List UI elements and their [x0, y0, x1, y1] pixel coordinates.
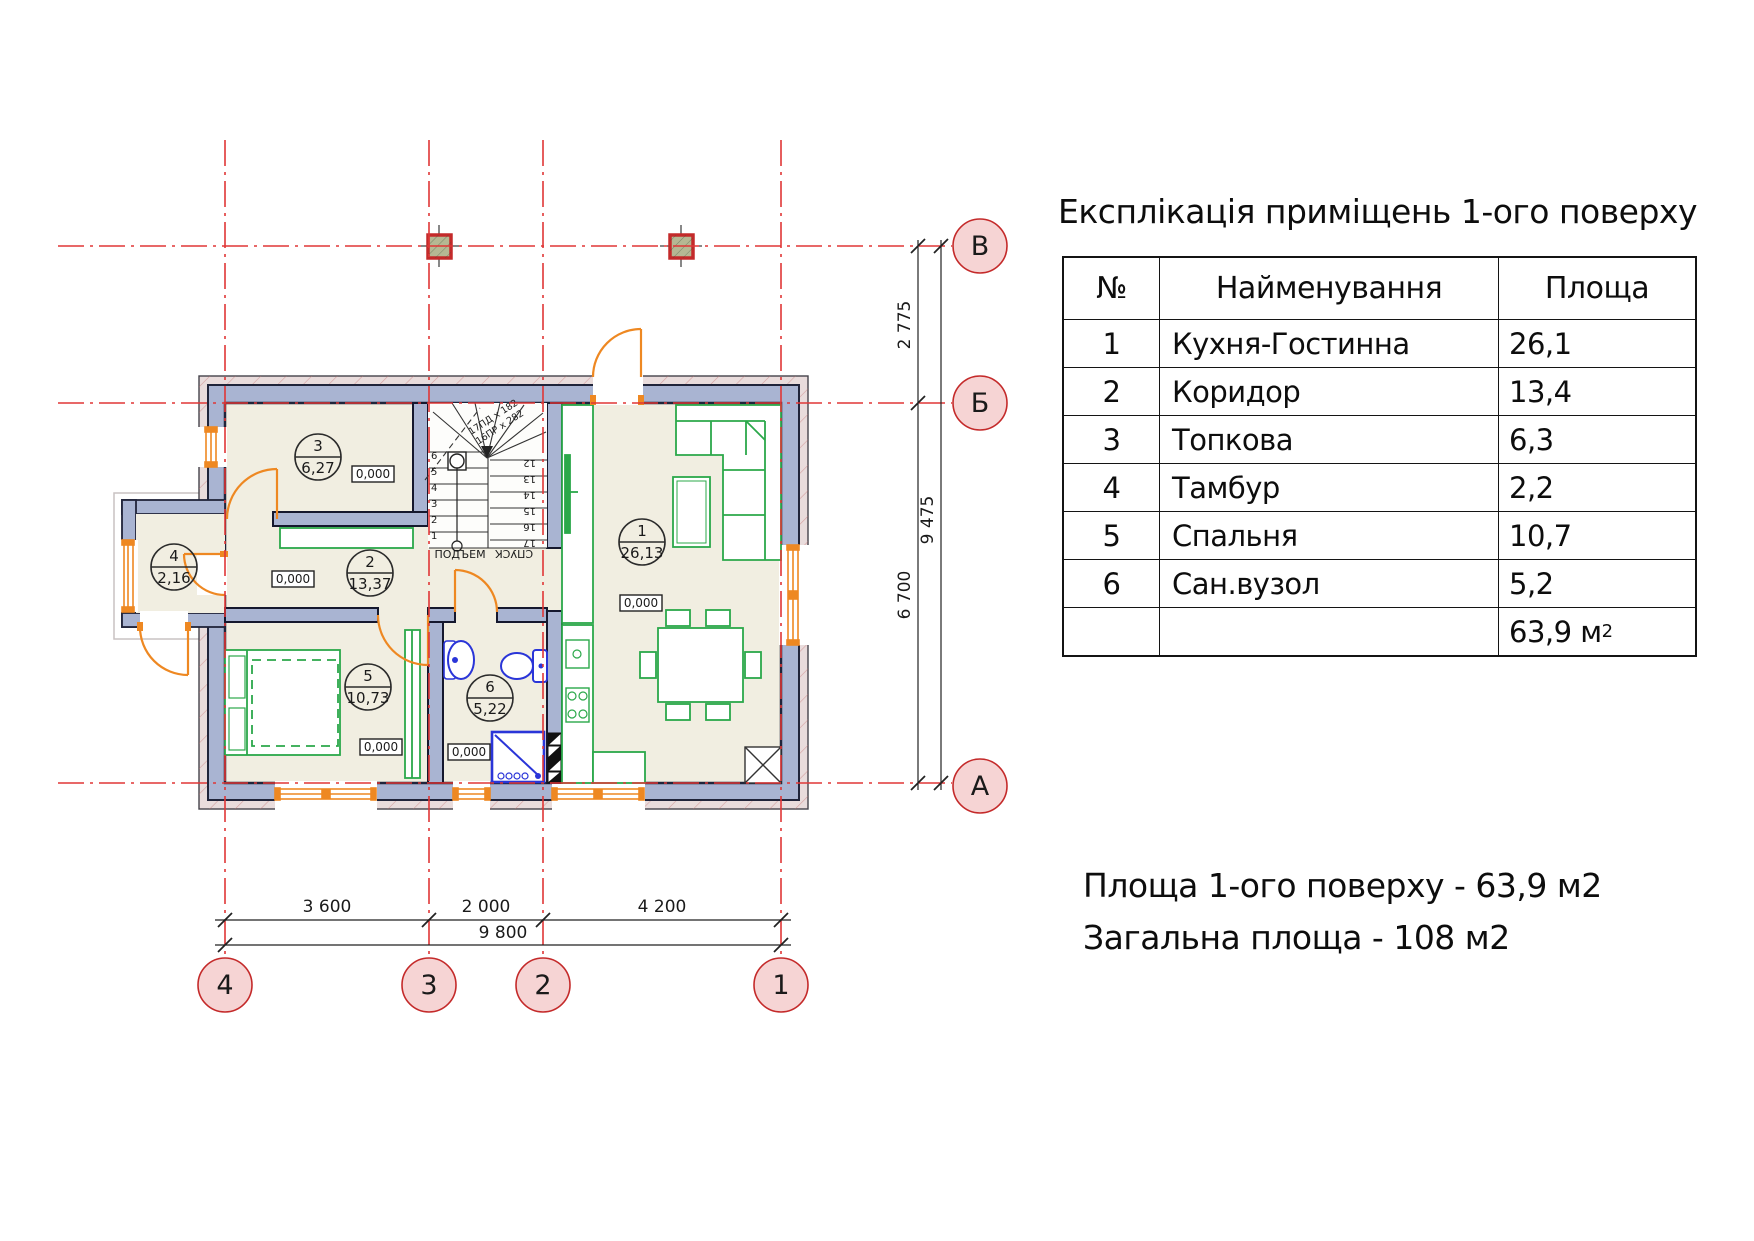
room-area: 2,16: [157, 569, 190, 587]
table-cell-name: Кухня-Гостинна: [1160, 320, 1499, 368]
table-cell-area: 10,7: [1499, 512, 1695, 560]
partition-corridor-b: [428, 608, 455, 622]
area-summary: Площа 1-ого поверху - 63,9 м2 Загальна п…: [1083, 860, 1602, 964]
dim-right-1: 2 775: [895, 301, 915, 350]
table-total-empty: [1064, 608, 1160, 655]
coffee-table: [673, 477, 710, 547]
table-header-number: №: [1064, 258, 1160, 320]
table-cell-number: 6: [1064, 560, 1160, 608]
corner-unit: [745, 747, 781, 783]
table-header-area: Площа: [1499, 258, 1695, 320]
table-cell-area: 2,2: [1499, 464, 1695, 512]
shower: [492, 732, 544, 782]
chair: [666, 704, 690, 720]
svg-text:2: 2: [534, 970, 551, 1001]
stair-num: 14: [523, 489, 536, 500]
partition-room3-stairs: [413, 403, 428, 517]
table-cell-number: 1: [1064, 320, 1160, 368]
svg-text:Б: Б: [971, 388, 990, 419]
bed: [225, 650, 340, 755]
table-cell-name: Топкова: [1160, 416, 1499, 464]
table-cell-number: 2: [1064, 368, 1160, 416]
window-kitchen-bottom: [552, 788, 644, 800]
room-label-2: 2 13,37: [347, 550, 393, 596]
table-cell-number: 4: [1064, 464, 1160, 512]
stair-num: 4: [431, 483, 437, 494]
chair: [706, 610, 730, 626]
table-header-name: Найменування: [1160, 258, 1499, 320]
axis-bubble-4: 4: [198, 958, 252, 1012]
dim-right-total: 9 475: [918, 496, 938, 545]
axis-bubble-B: В: [953, 219, 1007, 273]
table-cell-area: 26,1: [1499, 320, 1695, 368]
axis-bubble-Bb: Б: [953, 376, 1007, 430]
table-cell-number: 3: [1064, 416, 1160, 464]
tambour-exterior-door: [137, 622, 191, 675]
room-label-3: 3 6,27: [295, 434, 341, 480]
table-cell-name: Сан.вузол: [1160, 560, 1499, 608]
svg-text:В: В: [971, 231, 990, 262]
dining-table: [658, 628, 743, 702]
kitchen-counter-bottom: [593, 752, 645, 783]
axis-bubble-2: 2: [516, 958, 570, 1012]
svg-text:А: А: [971, 771, 990, 802]
room-number: 3: [313, 437, 323, 455]
elevation-mark: 0,000: [452, 745, 486, 759]
room-area: 26,13: [621, 544, 664, 562]
table-cell-area: 6,3: [1499, 416, 1695, 464]
room-label-6: 6 5,22: [467, 675, 513, 721]
table-cell-area: 13,4: [1499, 368, 1695, 416]
stair-num: 12: [523, 457, 536, 468]
dim-bottom-3: 4 200: [638, 897, 687, 917]
total-value: 63,9 м: [1509, 615, 1602, 649]
room-label-5: 5 10,73: [345, 664, 391, 710]
vent-shaft: [548, 733, 561, 783]
elevation-mark: 0,000: [624, 596, 658, 610]
partition-stairs-kitchen: [547, 403, 562, 548]
table-cell-area: 5,2: [1499, 560, 1695, 608]
stair-num: 17: [523, 537, 536, 548]
partition-room3-corridor: [273, 512, 428, 526]
chair: [745, 652, 761, 678]
partition-corridor-a: [225, 608, 378, 622]
room-area: 13,37: [349, 575, 392, 593]
dim-right-2: 6 700: [895, 571, 915, 620]
room-number: 2: [365, 553, 375, 571]
elevation-mark: 0,000: [276, 572, 310, 586]
table-total-area: 63,9 м2: [1499, 608, 1695, 655]
svg-text:1: 1: [772, 970, 789, 1001]
table-cell-name: Спальня: [1160, 512, 1499, 560]
bath-sink: [444, 641, 474, 679]
room-label-1: 1 26,13: [619, 519, 665, 565]
svg-text:3: 3: [420, 970, 437, 1001]
partition-bath-left: [428, 622, 443, 783]
stair-num: 3: [431, 499, 437, 510]
chair: [640, 652, 656, 678]
table-cell-number: 5: [1064, 512, 1160, 560]
stair-num: 1: [431, 531, 437, 542]
axis-bubble-3: 3: [402, 958, 456, 1012]
stair-num: 2: [431, 515, 437, 526]
room-number: 5: [363, 667, 373, 685]
stair-up-label: ПОДЪЕМ: [434, 548, 485, 561]
staircase: 6 5 4 3 2 1 12 13 14 15 16 17 17ПД х 182…: [425, 398, 547, 561]
room-area: 5,22: [473, 700, 506, 718]
elevation-mark: 0,000: [356, 467, 390, 481]
svg-text:4: 4: [216, 970, 233, 1001]
room-number: 1: [637, 522, 647, 540]
room-number: 4: [169, 547, 179, 565]
stair-num: 16: [523, 521, 536, 532]
axis-bubble-A: А: [953, 759, 1007, 813]
dim-bottom-2: 2 000: [462, 897, 511, 917]
floor-plan-sheet: { "title": "Експлікація приміщень 1-ого …: [0, 0, 1754, 1241]
chair: [706, 704, 730, 720]
stair-num: 6: [431, 451, 437, 462]
dim-bottom-total: 9 800: [479, 923, 528, 943]
explication-table: № Найменування Площа 1 Кухня-Гостинна 26…: [1062, 256, 1697, 657]
summary-line-2: Загальна площа - 108 м2: [1083, 912, 1602, 964]
toilet: [501, 650, 547, 682]
elevation-mark: 0,000: [364, 740, 398, 754]
kitchen-sink: [566, 640, 589, 668]
window-bedroom: [275, 788, 376, 800]
table-cell-name: Коридор: [1160, 368, 1499, 416]
partition-corridor-c: [497, 608, 547, 622]
table-total-empty: [1160, 608, 1499, 655]
corridor-closet: [280, 528, 413, 548]
window-kitchen-right: [787, 545, 799, 645]
stair-down-label: СПУСК: [495, 547, 533, 560]
room-label-4: 4 2,16: [151, 544, 197, 590]
room-area: 6,27: [301, 459, 334, 477]
table-cell-name: Тамбур: [1160, 464, 1499, 512]
room-number: 6: [485, 678, 495, 696]
stair-num: 5: [431, 467, 437, 478]
window-bathroom: [453, 788, 490, 800]
tv: [565, 455, 570, 533]
stair-num: 13: [523, 473, 536, 484]
stair-num: 15: [523, 505, 536, 516]
chair: [666, 610, 690, 626]
axis-bubble-1: 1: [754, 958, 808, 1012]
room-area: 10,73: [347, 689, 390, 707]
page-title: Експлікація приміщень 1-ого поверху: [1040, 192, 1715, 231]
summary-line-1: Площа 1-ого поверху - 63,9 м2: [1083, 860, 1602, 912]
dim-bottom-1: 3 600: [303, 897, 352, 917]
